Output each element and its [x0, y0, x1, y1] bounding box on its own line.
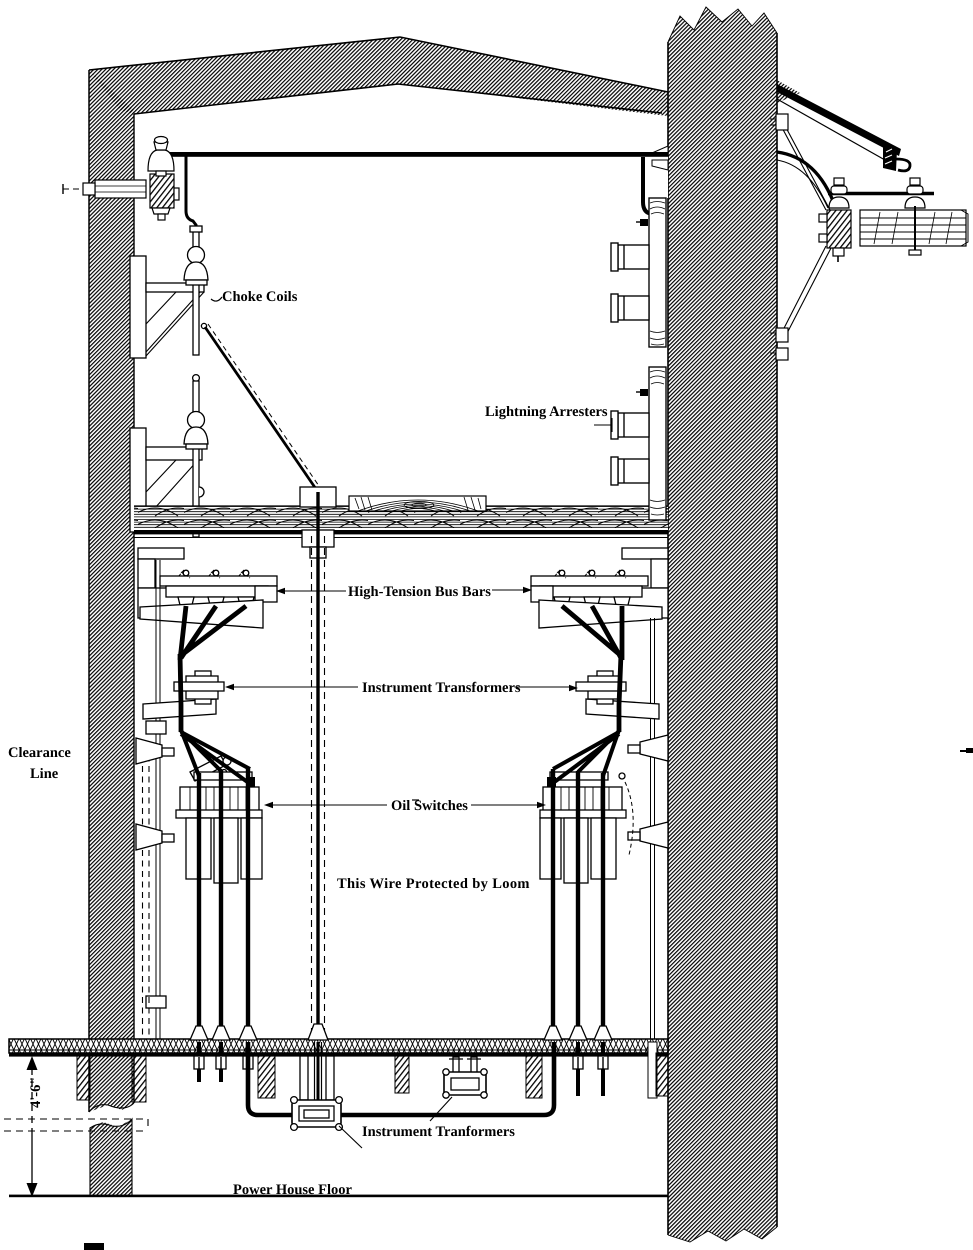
- svg-text:Lightning Arresters: Lightning Arresters: [485, 404, 608, 420]
- svg-text:This Wire Protected by Loom: This Wire Protected by Loom: [337, 876, 530, 892]
- svg-text:Line: Line: [30, 766, 59, 782]
- svg-text:4'-6": 4'-6": [28, 1077, 44, 1108]
- svg-text:Power House Floor: Power House Floor: [233, 1182, 352, 1198]
- svg-text:Instrument Tranformers: Instrument Tranformers: [362, 1124, 515, 1140]
- svg-text:High-Tension Bus Bars: High-Tension Bus Bars: [348, 584, 491, 600]
- svg-text:Choke Coils: Choke Coils: [222, 289, 298, 305]
- svg-text:Clearance: Clearance: [8, 745, 71, 761]
- svg-text:Oil Switches: Oil Switches: [391, 798, 468, 814]
- svg-text:Instrument Transformers: Instrument Transformers: [362, 680, 521, 696]
